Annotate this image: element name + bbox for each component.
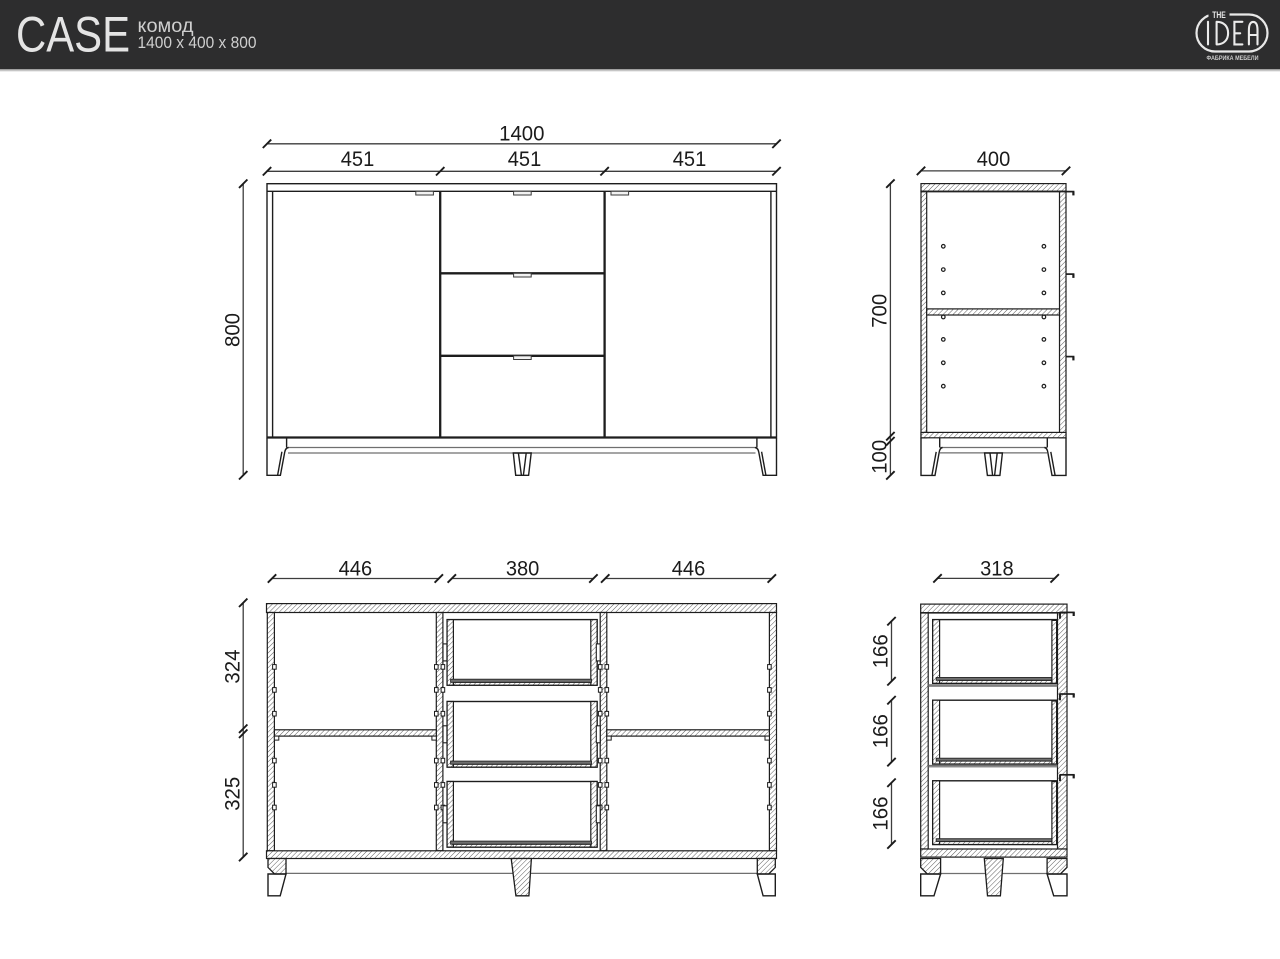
svg-text:446: 446	[339, 557, 373, 581]
svg-text:CASE: CASE	[16, 7, 130, 63]
svg-text:1400: 1400	[499, 122, 544, 146]
svg-text:166: 166	[869, 797, 893, 831]
svg-text:446: 446	[672, 557, 706, 581]
svg-text:THE: THE	[1212, 10, 1226, 20]
svg-text:800: 800	[220, 313, 244, 347]
svg-text:ФАБРИКА МЕБЕЛИ: ФАБРИКА МЕБЕЛИ	[1207, 55, 1259, 62]
svg-text:1400 x 400 x 800: 1400 x 400 x 800	[138, 34, 257, 52]
svg-text:380: 380	[506, 557, 540, 581]
svg-text:318: 318	[980, 556, 1014, 580]
svg-text:166: 166	[869, 634, 893, 668]
svg-text:400: 400	[977, 147, 1011, 171]
svg-text:100: 100	[868, 440, 892, 474]
svg-text:451: 451	[673, 147, 707, 171]
svg-text:166: 166	[869, 714, 893, 748]
svg-text:324: 324	[220, 650, 244, 684]
svg-text:700: 700	[868, 294, 892, 328]
svg-text:325: 325	[220, 777, 244, 811]
svg-text:451: 451	[508, 147, 542, 171]
svg-text:451: 451	[341, 147, 375, 171]
